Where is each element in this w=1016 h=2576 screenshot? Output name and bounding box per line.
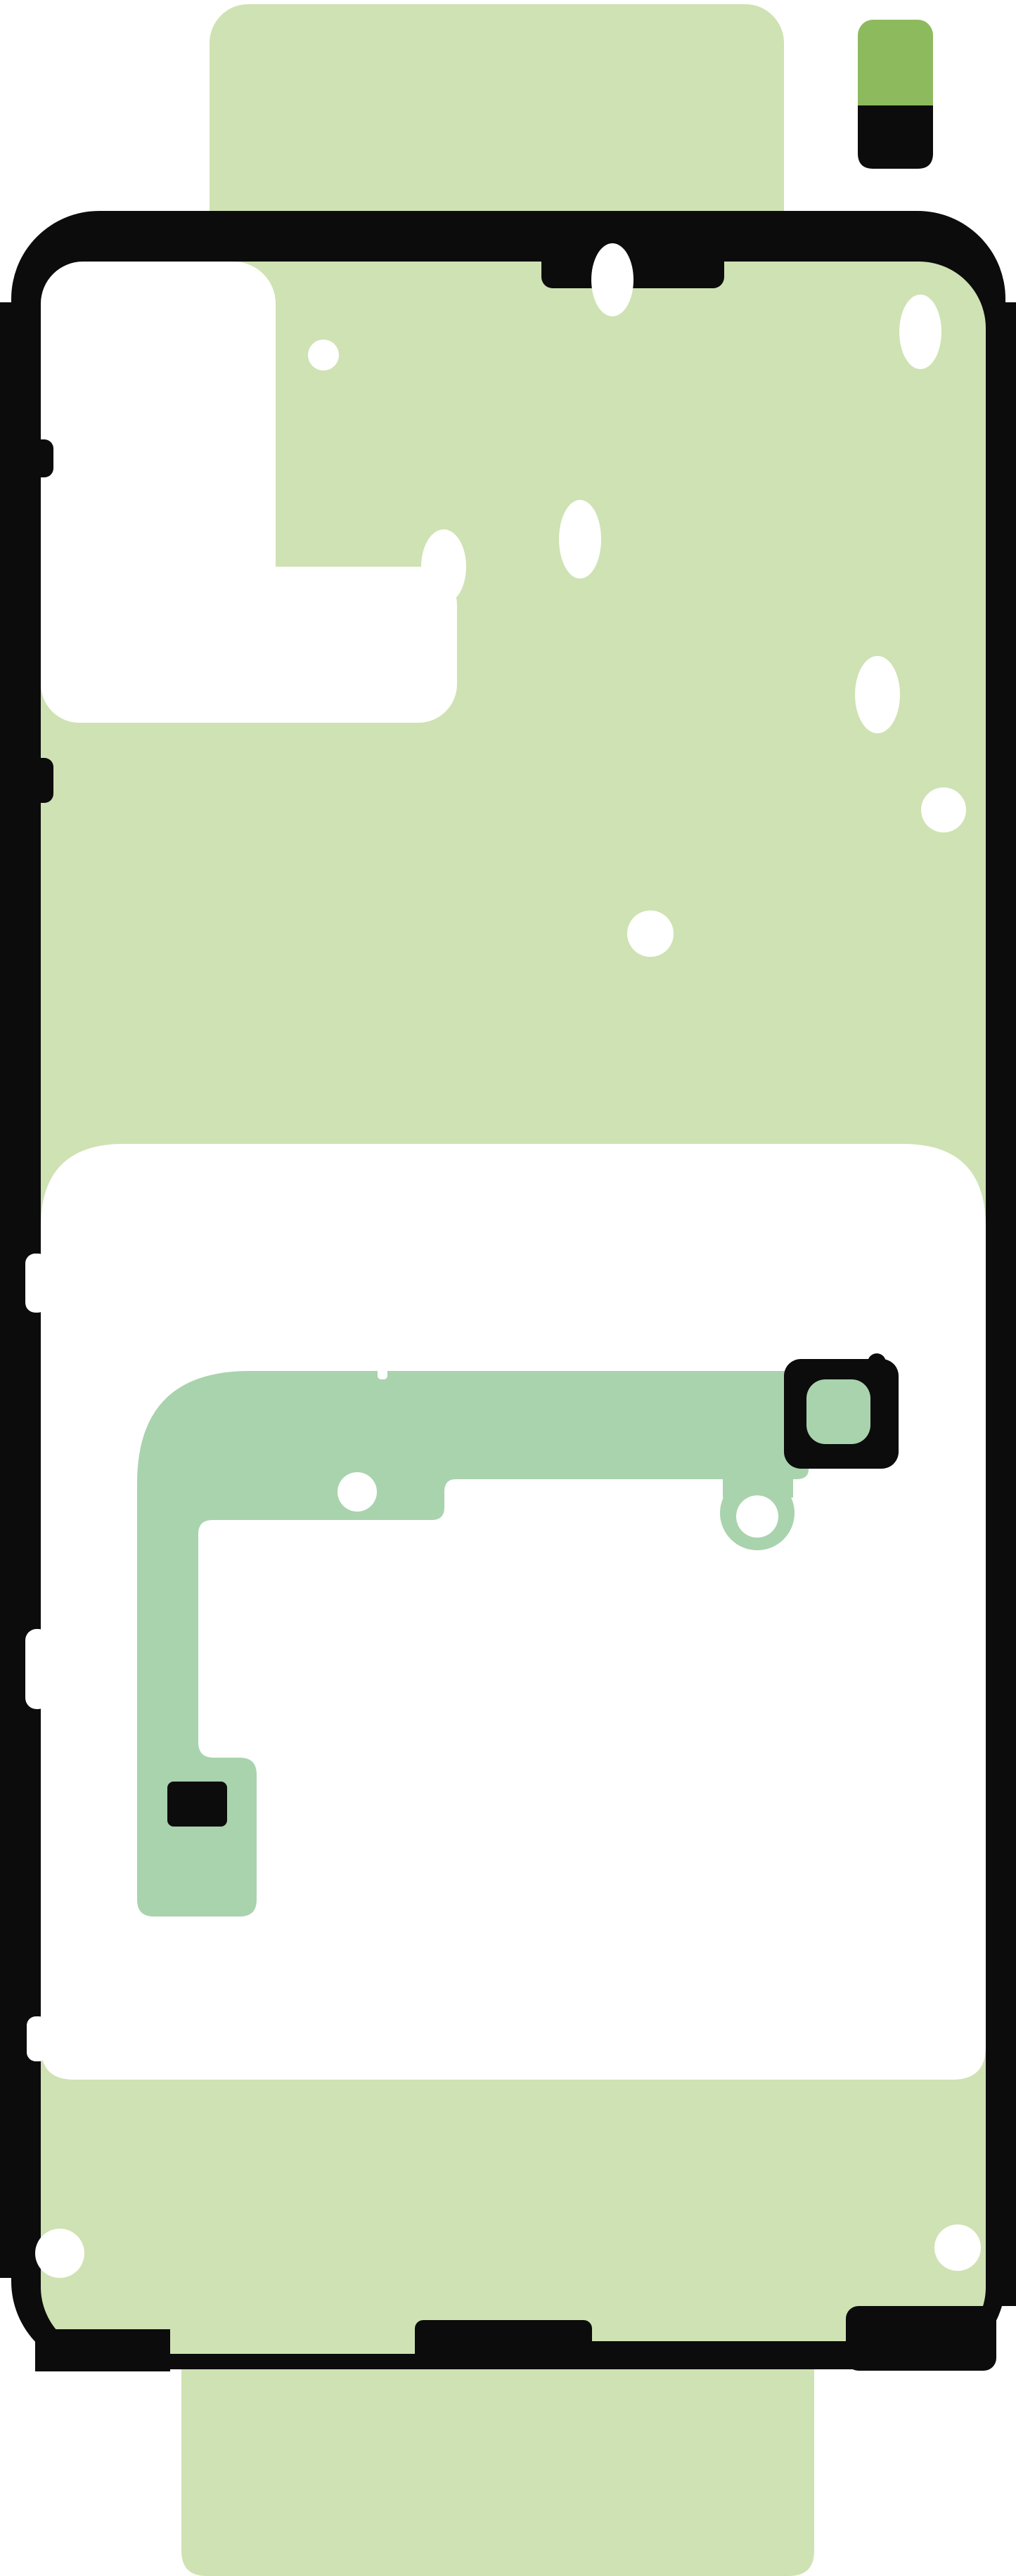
alignment-hole-top-right (899, 295, 941, 369)
alignment-hole-upper-left (308, 340, 339, 371)
alignment-hole-bottom-left (35, 2229, 84, 2278)
alignment-hole-right (921, 787, 966, 832)
alignment-hole-bottom-right (934, 2224, 981, 2271)
bottom-edge-step-far-right (846, 2306, 996, 2371)
adhesive-sheet-graphic (0, 0, 1016, 2576)
alignment-hole-mid-left (421, 529, 466, 604)
camera-area-cutout-lower (41, 567, 457, 723)
side-button-bump-lower (30, 758, 53, 803)
product-image-stage (0, 0, 1016, 2576)
alignment-hole-mid-center (559, 500, 601, 579)
alignment-hole-top-center (591, 243, 634, 316)
left-edge-notch-1 (25, 1254, 48, 1313)
camera-ring-bump (868, 1353, 886, 1372)
strip-hole-left (337, 1472, 377, 1512)
side-button-bump-upper (30, 439, 53, 477)
camera-ring-window (806, 1379, 870, 1444)
bottom-edge-step-right (584, 2341, 858, 2369)
alignment-hole-mid-right (855, 656, 900, 733)
bottom-edge-step-mid (415, 2320, 592, 2365)
top-right-pull-tab-black (858, 105, 933, 169)
bottom-edge-step-left (35, 2329, 170, 2371)
left-edge-notch-3 (27, 2016, 48, 2061)
alignment-hole-center (627, 910, 674, 957)
flash-cutout-square (167, 1782, 227, 1827)
bottom-release-tab (181, 2368, 814, 2576)
strip-hole-right (736, 1495, 778, 1538)
left-edge-notch-2 (25, 1629, 49, 1709)
strip-top-slit (378, 1365, 387, 1379)
